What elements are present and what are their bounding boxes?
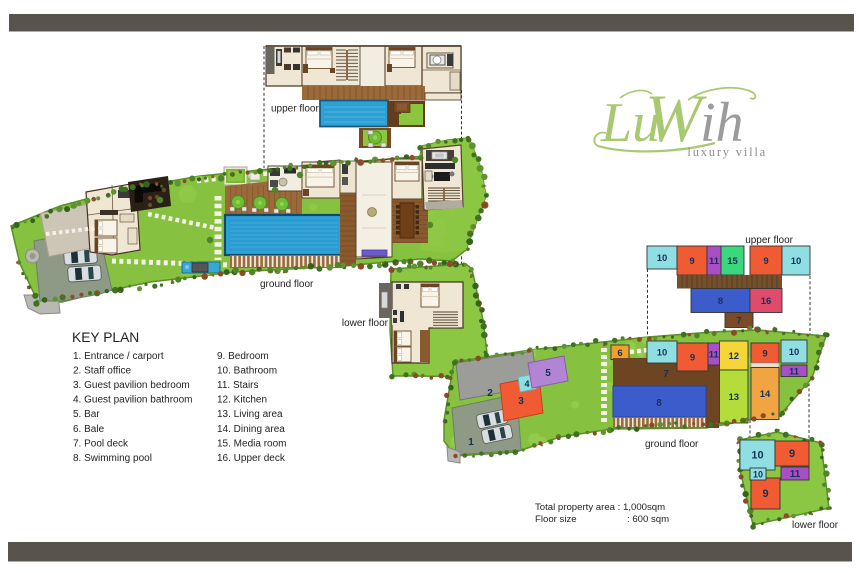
- svg-text:7: 7: [736, 316, 741, 327]
- svg-text:11: 11: [709, 350, 720, 361]
- svg-text:16. Upper deck: 16. Upper deck: [217, 453, 286, 464]
- svg-text:9: 9: [789, 448, 795, 460]
- svg-text:10. Bathroom: 10. Bathroom: [217, 366, 277, 377]
- svg-text:11: 11: [790, 469, 801, 480]
- svg-text:9. Bedroom: 9. Bedroom: [217, 351, 269, 362]
- svg-text:8: 8: [718, 296, 723, 307]
- svg-text:6: 6: [617, 348, 622, 359]
- svg-text:7. Pool deck: 7. Pool deck: [73, 438, 129, 449]
- svg-text:ground floor: ground floor: [645, 439, 699, 450]
- svg-text:luxury villa: luxury villa: [687, 145, 767, 159]
- svg-text:11: 11: [709, 256, 720, 267]
- svg-text:7: 7: [663, 369, 669, 380]
- svg-text:ground floor: ground floor: [260, 279, 314, 290]
- svg-text:: 600 sqm: : 600 sqm: [627, 514, 669, 525]
- svg-text:14: 14: [760, 389, 771, 400]
- svg-text:10: 10: [657, 348, 668, 359]
- svg-text:10: 10: [751, 450, 763, 462]
- svg-text:14. Dining area: 14. Dining area: [217, 424, 285, 435]
- svg-text:lower floor: lower floor: [792, 520, 839, 531]
- svg-text:Total property area : 1,000sqm: Total property area : 1,000sqm: [535, 502, 665, 513]
- svg-text:9: 9: [763, 256, 768, 267]
- svg-text:4. Guest pavilion bathroom: 4. Guest pavilion bathroom: [73, 395, 193, 406]
- svg-text:9: 9: [690, 353, 695, 364]
- svg-text:9: 9: [689, 256, 694, 267]
- svg-text:16: 16: [761, 296, 772, 307]
- svg-text:5. Bar: 5. Bar: [73, 409, 100, 420]
- svg-text:2. Staff office: 2. Staff office: [73, 366, 131, 377]
- svg-text:10: 10: [791, 256, 802, 267]
- svg-text:10: 10: [753, 470, 763, 480]
- svg-text:13. Living area: 13. Living area: [217, 409, 283, 420]
- svg-text:5: 5: [545, 368, 551, 379]
- svg-text:8: 8: [656, 398, 662, 409]
- svg-text:1: 1: [468, 437, 474, 448]
- svg-text:12. Kitchen: 12. Kitchen: [217, 395, 267, 406]
- svg-text:10: 10: [657, 253, 668, 264]
- svg-text:2: 2: [487, 388, 493, 399]
- svg-text:4: 4: [524, 379, 529, 389]
- svg-text:12: 12: [728, 351, 739, 362]
- svg-text:8. Swimming pool: 8. Swimming pool: [73, 453, 152, 464]
- svg-text:13: 13: [728, 392, 739, 403]
- svg-text:3: 3: [518, 396, 524, 407]
- svg-text:KEY PLAN: KEY PLAN: [72, 330, 139, 345]
- svg-text:11: 11: [789, 366, 800, 377]
- svg-text:lower floor: lower floor: [342, 318, 389, 329]
- svg-text:11. Stairs: 11. Stairs: [217, 380, 259, 391]
- svg-text:3. Guest pavilion bedroom: 3. Guest pavilion bedroom: [73, 380, 190, 391]
- svg-text:9: 9: [762, 349, 767, 360]
- svg-text:Floor size: Floor size: [535, 514, 577, 525]
- svg-text:upper floor: upper floor: [271, 104, 319, 115]
- svg-text:15. Media room: 15. Media room: [217, 438, 286, 449]
- svg-text:9: 9: [762, 488, 768, 500]
- svg-text:1. Entrance / carport: 1. Entrance / carport: [73, 351, 164, 362]
- svg-text:6. Bale: 6. Bale: [73, 424, 105, 435]
- svg-text:upper floor: upper floor: [745, 235, 793, 246]
- svg-text:15: 15: [727, 256, 738, 267]
- svg-text:10: 10: [789, 347, 800, 358]
